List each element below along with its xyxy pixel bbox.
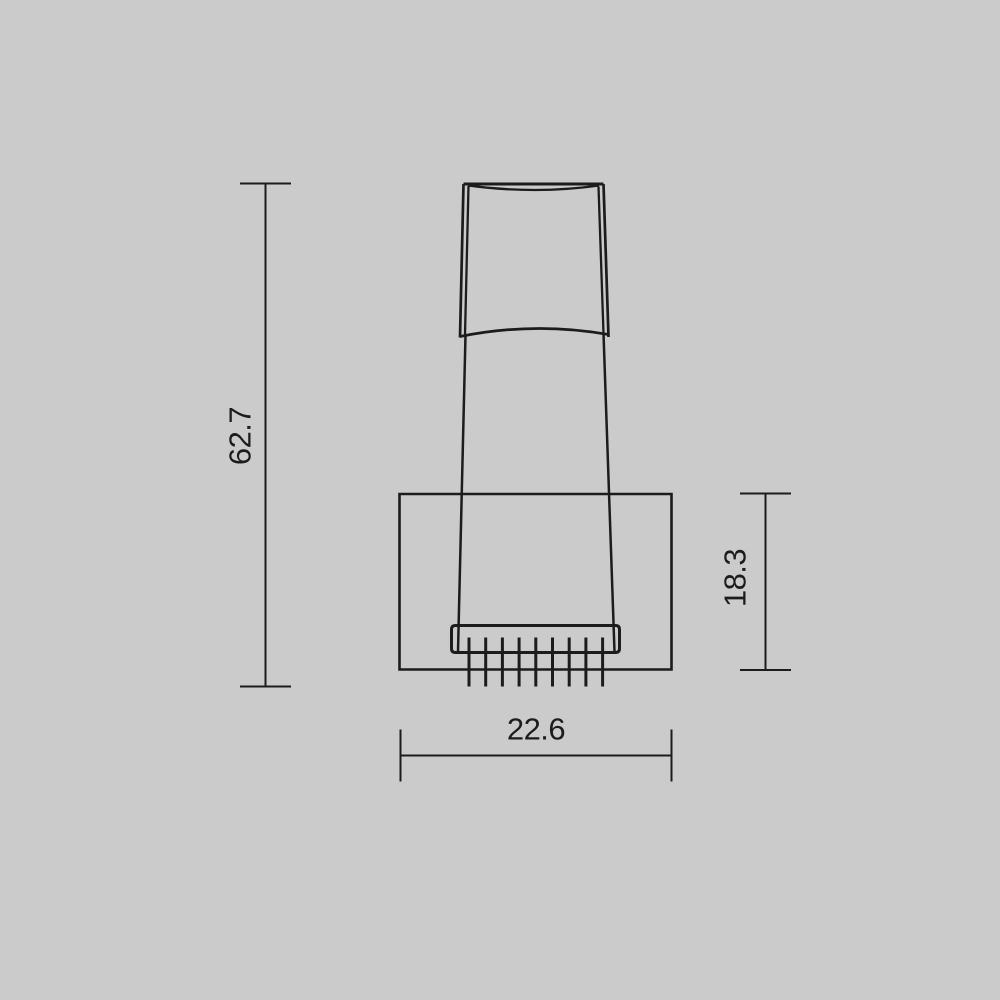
drawing-canvas: 62.7 18.3 22.6 (0, 0, 1000, 1000)
dimension-label-overall-height: 62.7 (223, 407, 258, 465)
dimension-label-backplate-height: 18.3 (718, 549, 753, 607)
product-outline (400, 184, 672, 670)
dimension-labels: 62.7 18.3 22.6 (223, 407, 753, 747)
shade-right-outer (604, 184, 609, 337)
dimension-lines (240, 184, 791, 782)
shade-left-outer (460, 184, 464, 338)
shade-right-inner (599, 187, 604, 334)
lamp-technical-drawing: 62.7 18.3 22.6 (0, 0, 1000, 1000)
shade-left-inner (465, 186, 469, 335)
stem-right-edge (604, 334, 615, 652)
shade-bottom-curve (460, 328, 609, 336)
heatsink-fins (469, 638, 603, 687)
shade-top-curve (468, 186, 599, 191)
dimension-label-backplate-width: 22.6 (507, 712, 565, 747)
